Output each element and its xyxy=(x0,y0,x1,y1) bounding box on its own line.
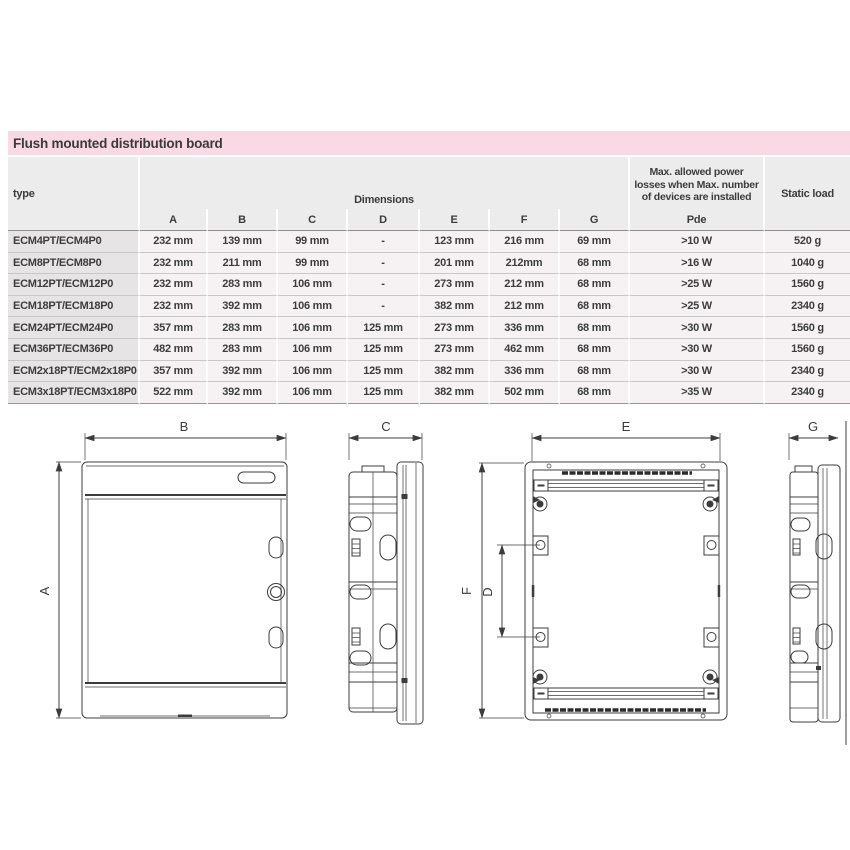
cell-a: 232 mm xyxy=(140,274,208,296)
cell-e: 273 mm xyxy=(420,317,490,339)
spec-table-body: ECM4PT/ECM4P0232 mm139 mm99 mm-123 mm216… xyxy=(8,231,850,404)
cell-d: 125 mm xyxy=(348,361,420,383)
corner-fastener-icons xyxy=(533,496,719,684)
cell-g: 68 mm xyxy=(560,382,630,404)
cell-f: 336 mm xyxy=(490,317,560,339)
cell-f: 502 mm xyxy=(490,382,560,404)
cell-f: 212mm xyxy=(490,253,560,275)
header-dimensions: Dimensions xyxy=(140,157,630,209)
dim-label-f: F xyxy=(459,587,474,595)
cell-pde: >25 W xyxy=(630,274,765,296)
dim-label-b: B xyxy=(180,419,189,434)
cell-pde: >25 W xyxy=(630,296,765,318)
cell-g: 68 mm xyxy=(560,339,630,361)
cell-load: 1560 g xyxy=(765,274,850,296)
cell-load: 520 g xyxy=(765,231,850,253)
cell-e: 273 mm xyxy=(420,339,490,361)
spec-table-header: type Dimensions Max. allowed power losse… xyxy=(8,157,850,231)
cell-f: 462 mm xyxy=(490,339,560,361)
section-title-bar: Flush mounted distribution board xyxy=(8,131,850,155)
cell-a: 232 mm xyxy=(140,253,208,275)
cell-load: 2340 g xyxy=(765,296,850,318)
cell-d: 125 mm xyxy=(348,317,420,339)
front-view-drawing: B A xyxy=(37,419,287,718)
cell-e: 382 mm xyxy=(420,382,490,404)
cell-a: 357 mm xyxy=(140,317,208,339)
cell-a: 482 mm xyxy=(140,339,208,361)
cell-load: 1560 g xyxy=(765,317,850,339)
cell-e: 273 mm xyxy=(420,274,490,296)
page-title: Flush mounted distribution board xyxy=(8,136,223,151)
datasheet-page: Flush mounted distribution board type Di… xyxy=(0,0,850,850)
cell-c: 106 mm xyxy=(278,317,348,339)
side-view-g-drawing: G xyxy=(789,419,846,745)
dim-label-g: G xyxy=(808,419,818,434)
dimension-drawings: B A xyxy=(0,415,850,750)
row-type-cell: ECM8PT/ECM8P0 xyxy=(8,253,140,275)
cell-load: 2340 g xyxy=(765,382,850,404)
cell-c: 106 mm xyxy=(278,274,348,296)
cell-b: 283 mm xyxy=(208,339,278,361)
header-power-losses: Max. allowed power losses when Max. numb… xyxy=(630,157,765,209)
cell-b: 139 mm xyxy=(208,231,278,253)
dim-label-c: C xyxy=(381,419,390,434)
row-type-cell: ECM4PT/ECM4P0 xyxy=(8,231,140,253)
cell-e: 382 mm xyxy=(420,361,490,383)
dim-label-e: E xyxy=(622,419,631,434)
cell-b: 283 mm xyxy=(208,317,278,339)
cell-pde: >30 W xyxy=(630,339,765,361)
cell-d: 125 mm xyxy=(348,382,420,404)
header-col-d: D xyxy=(348,209,420,231)
cell-c: 106 mm xyxy=(278,361,348,383)
header-col-e: E xyxy=(420,209,490,231)
cell-load: 1040 g xyxy=(765,253,850,275)
cell-a: 522 mm xyxy=(140,382,208,404)
rear-view-drawing: E F xyxy=(459,419,727,720)
cell-pde: >35 W xyxy=(630,382,765,404)
cell-b: 392 mm xyxy=(208,382,278,404)
cell-b: 283 mm xyxy=(208,274,278,296)
cell-c: 106 mm xyxy=(278,382,348,404)
header-col-a: A xyxy=(140,209,208,231)
cell-f: 212 mm xyxy=(490,296,560,318)
cell-d: - xyxy=(348,274,420,296)
header-static-load: Static load xyxy=(765,157,850,231)
dim-label-d: D xyxy=(480,587,495,596)
cell-a: 232 mm xyxy=(140,231,208,253)
header-pde-symbol: Pde xyxy=(630,209,765,231)
cell-g: 69 mm xyxy=(560,231,630,253)
cell-e: 382 mm xyxy=(420,296,490,318)
header-col-g: G xyxy=(560,209,630,231)
cell-pde: >30 W xyxy=(630,361,765,383)
cell-load: 2340 g xyxy=(765,361,850,383)
cell-g: 68 mm xyxy=(560,361,630,383)
cell-a: 232 mm xyxy=(140,296,208,318)
cell-pde: >30 W xyxy=(630,317,765,339)
cell-g: 68 mm xyxy=(560,253,630,275)
row-type-cell: ECM3x18PT/ECM3x18P0 xyxy=(8,382,140,404)
cell-g: 68 mm xyxy=(560,296,630,318)
cell-b: 211 mm xyxy=(208,253,278,275)
cell-c: 99 mm xyxy=(278,231,348,253)
cell-e: 201 mm xyxy=(420,253,490,275)
header-type: type xyxy=(8,157,140,231)
header-col-f: F xyxy=(490,209,560,231)
cell-g: 68 mm xyxy=(560,317,630,339)
mounting-tab-icons xyxy=(533,536,719,647)
cell-d: 125 mm xyxy=(348,339,420,361)
cell-g: 68 mm xyxy=(560,274,630,296)
cell-c: 99 mm xyxy=(278,253,348,275)
row-type-cell: ECM24PT/ECM24P0 xyxy=(8,317,140,339)
cell-a: 357 mm xyxy=(140,361,208,383)
row-type-cell: ECM2x18PT/ECM2x18P0 xyxy=(8,361,140,383)
cell-c: 106 mm xyxy=(278,296,348,318)
cell-b: 392 mm xyxy=(208,296,278,318)
cell-e: 123 mm xyxy=(420,231,490,253)
cell-b: 392 mm xyxy=(208,361,278,383)
cell-c: 106 mm xyxy=(278,339,348,361)
dim-label-a: A xyxy=(37,586,52,595)
side-view-c-drawing: C xyxy=(349,419,423,724)
cell-load: 1560 g xyxy=(765,339,850,361)
header-col-c: C xyxy=(278,209,348,231)
cell-f: 336 mm xyxy=(490,361,560,383)
cell-f: 216 mm xyxy=(490,231,560,253)
cell-pde: >16 W xyxy=(630,253,765,275)
row-type-cell: ECM18PT/ECM18P0 xyxy=(8,296,140,318)
header-col-b: B xyxy=(208,209,278,231)
cell-d: - xyxy=(348,296,420,318)
row-type-cell: ECM36PT/ECM36P0 xyxy=(8,339,140,361)
cell-d: - xyxy=(348,253,420,275)
cell-pde: >10 W xyxy=(630,231,765,253)
cell-d: - xyxy=(348,231,420,253)
cell-f: 212 mm xyxy=(490,274,560,296)
row-type-cell: ECM12PT/ECM12P0 xyxy=(8,274,140,296)
